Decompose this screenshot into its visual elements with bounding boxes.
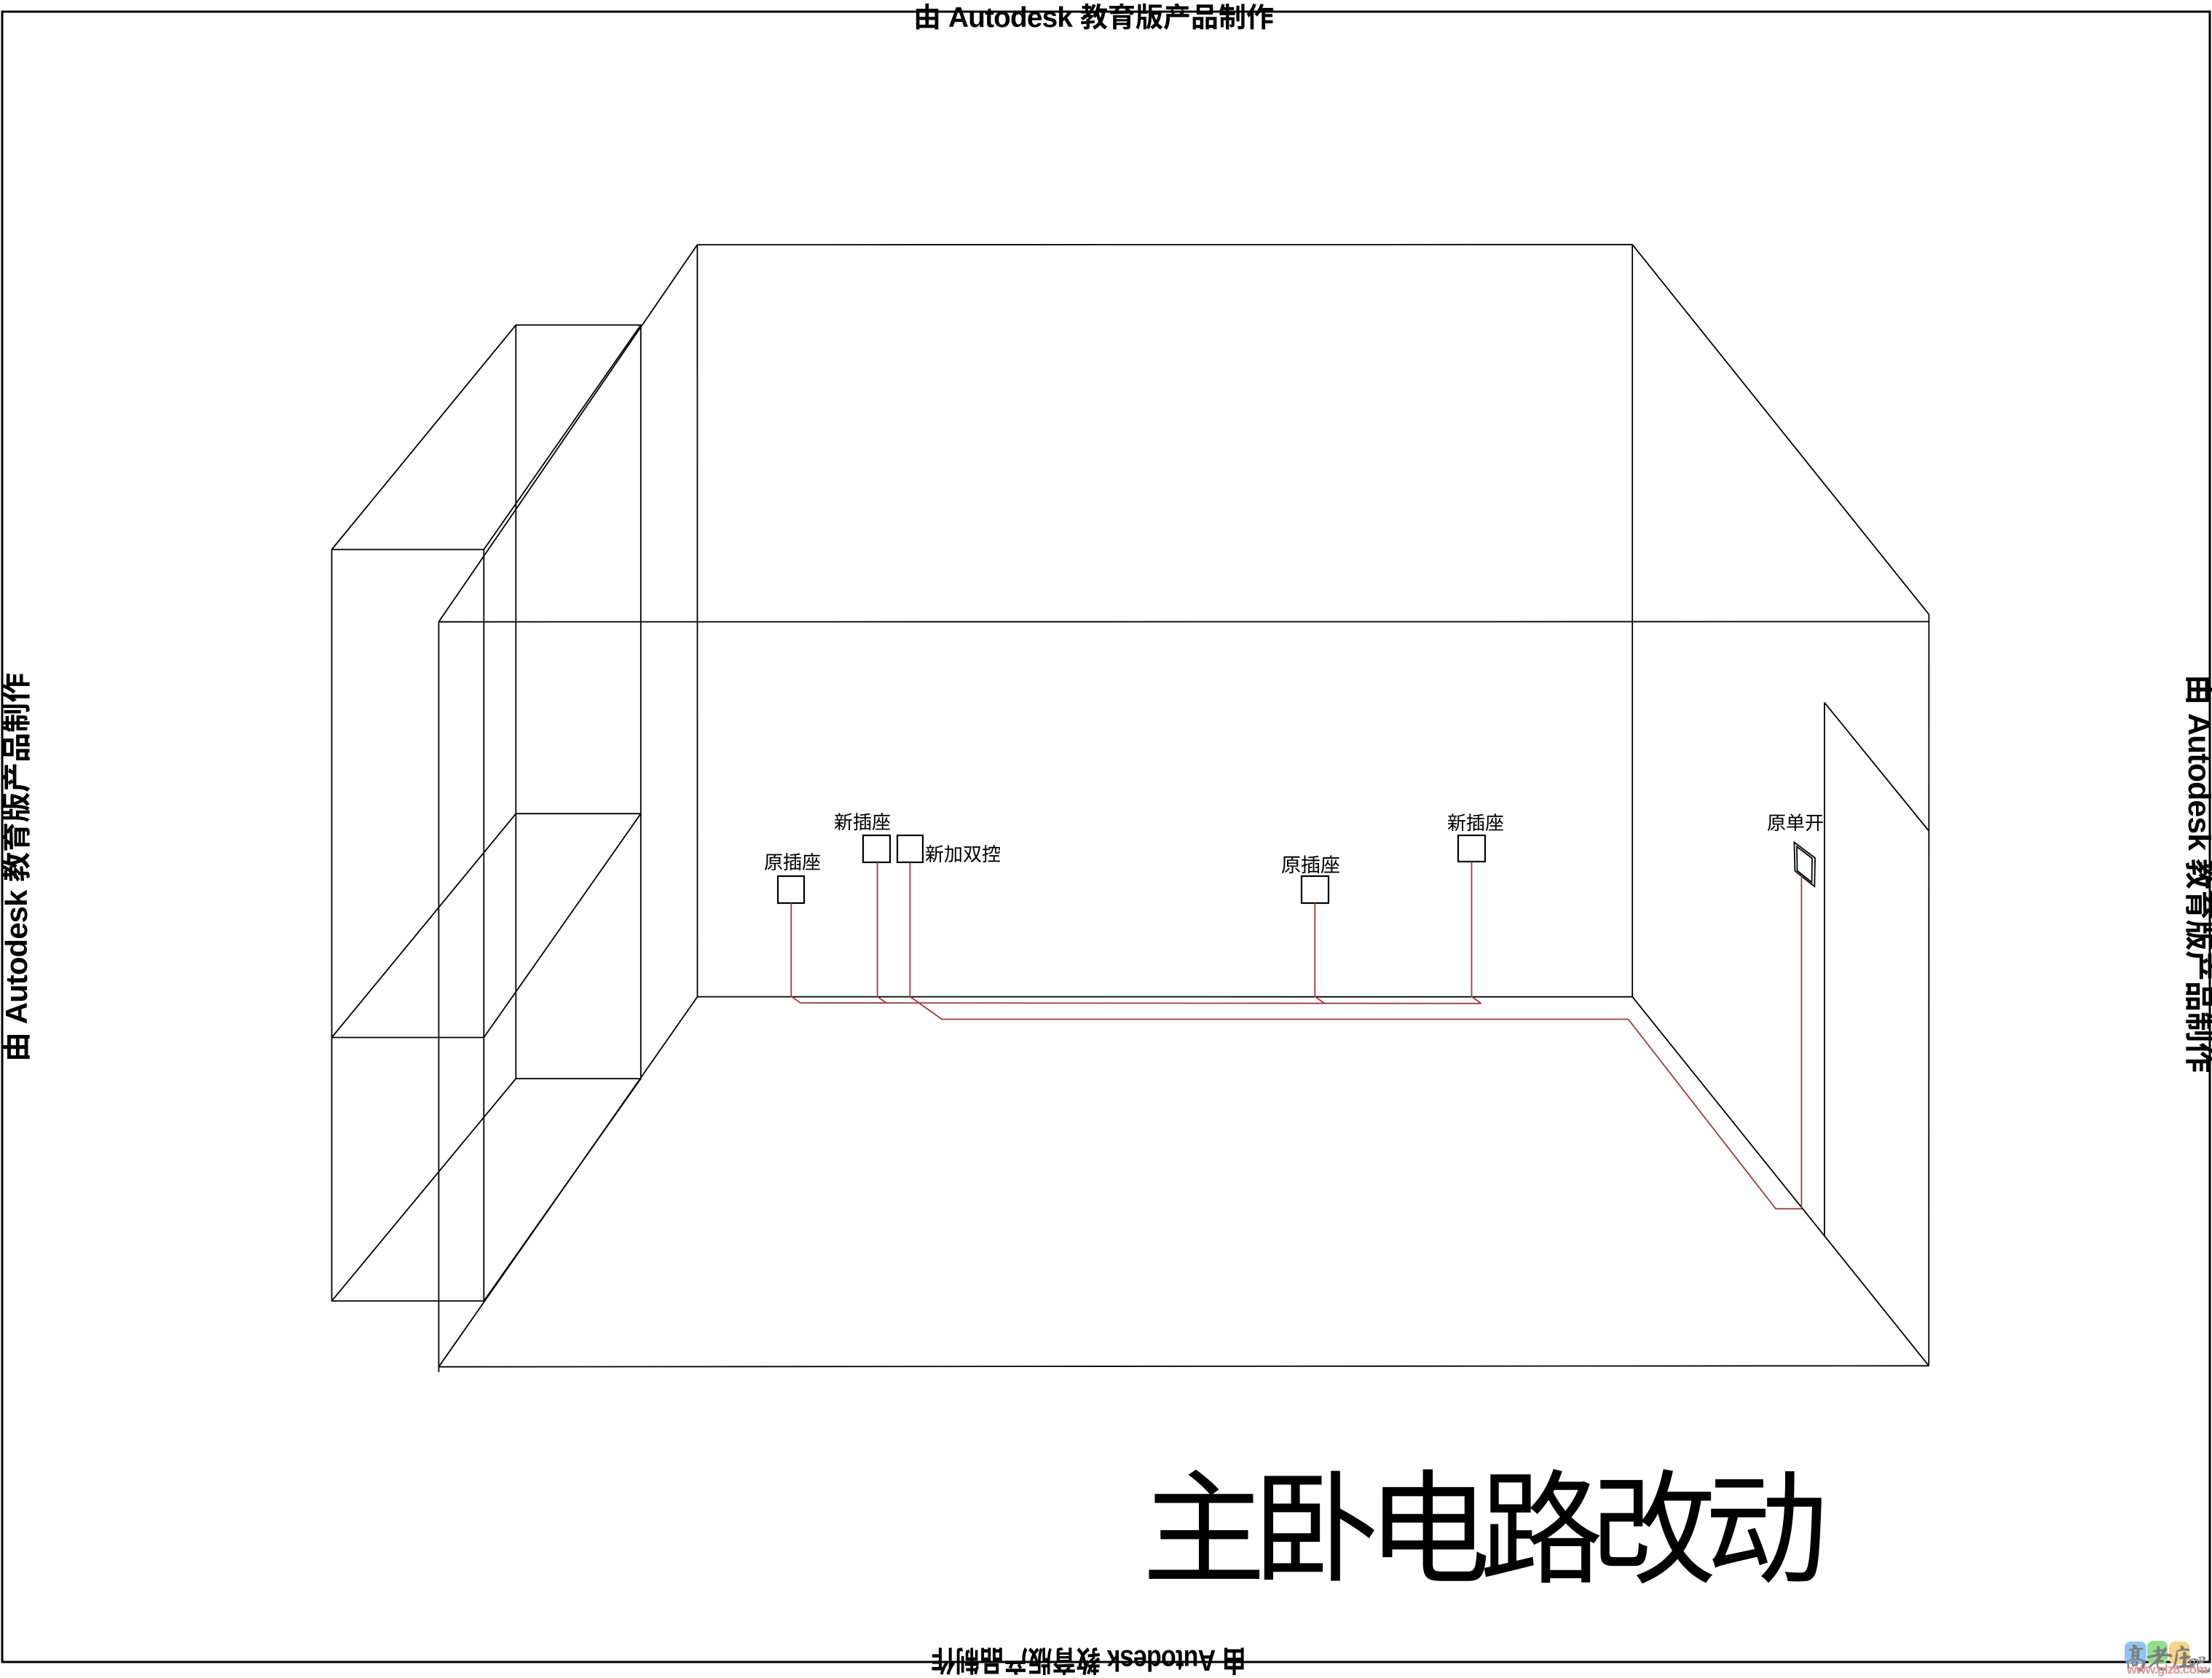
- svg-text:Autodesk: Autodesk: [948, 2, 1073, 34]
- svg-text:Autodesk: Autodesk: [1107, 1644, 1216, 1677]
- svg-text:Autodesk: Autodesk: [0, 889, 34, 1024]
- svg-text:Autodesk: Autodesk: [2181, 713, 2212, 851]
- svg-text:www.glz8.com: www.glz8.com: [2126, 1662, 2208, 1677]
